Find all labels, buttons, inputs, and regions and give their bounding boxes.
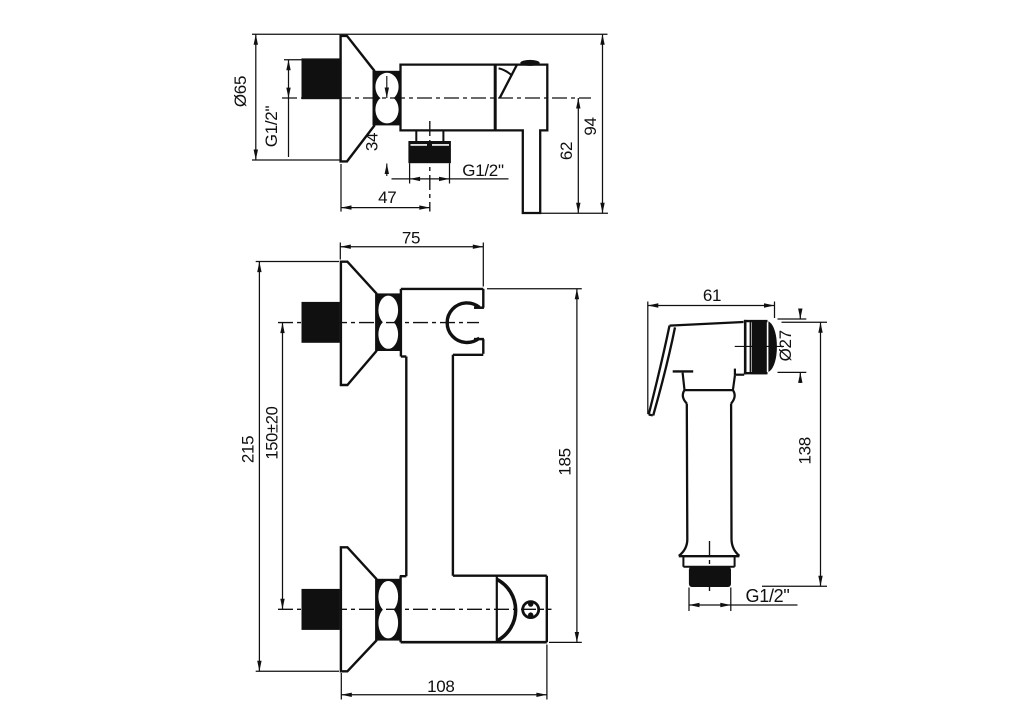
svg-text:G1/2": G1/2" [746,586,790,606]
svg-text:Ø65: Ø65 [231,76,250,107]
svg-text:75: 75 [402,229,420,248]
svg-text:215: 215 [239,436,258,463]
svg-text:150±20: 150±20 [264,406,282,459]
svg-text:34: 34 [363,133,382,151]
svg-text:G1/2": G1/2" [262,106,281,148]
svg-text:Ø27: Ø27 [776,330,795,361]
svg-text:61: 61 [703,286,721,305]
svg-text:138: 138 [796,437,815,464]
svg-text:47: 47 [378,188,396,207]
svg-text:62: 62 [557,142,576,160]
svg-text:94: 94 [581,117,600,135]
svg-text:G1/2": G1/2" [462,161,504,180]
svg-text:185: 185 [556,448,575,475]
svg-text:108: 108 [427,677,454,696]
